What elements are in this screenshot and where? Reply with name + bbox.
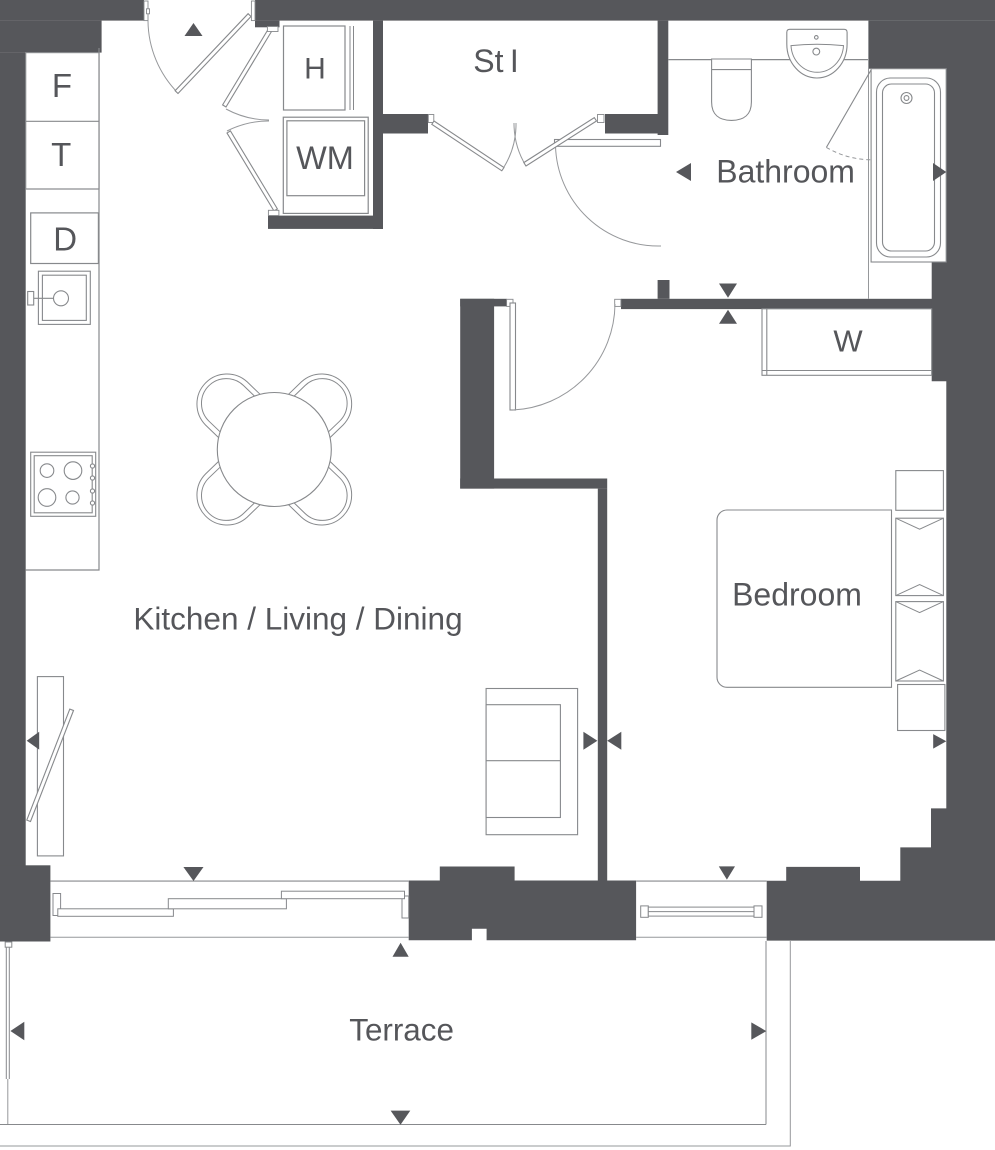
svg-text:W: W xyxy=(833,323,863,358)
svg-text:H: H xyxy=(304,53,326,86)
svg-text:St I: St I xyxy=(473,43,519,79)
svg-text:D: D xyxy=(53,221,77,258)
svg-text:WM: WM xyxy=(296,140,354,176)
svg-text:F: F xyxy=(52,67,72,104)
svg-text:T: T xyxy=(51,136,71,173)
svg-text:Terrace: Terrace xyxy=(349,1013,454,1048)
svg-text:Bedroom: Bedroom xyxy=(732,577,862,613)
svg-text:Bathroom: Bathroom xyxy=(716,154,855,190)
svg-text:Kitchen / Living / Dining: Kitchen / Living / Dining xyxy=(133,601,462,637)
